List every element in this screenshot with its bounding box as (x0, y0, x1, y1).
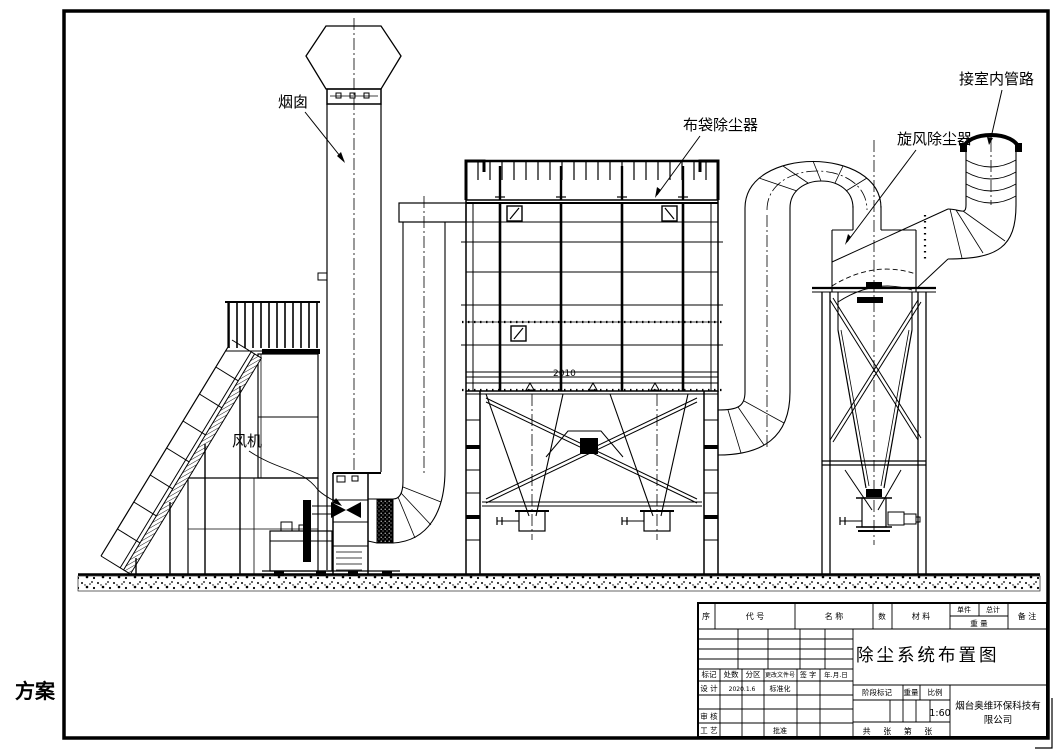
fan-inlet-duct (377, 196, 466, 543)
standardize-label: 标准化 (770, 684, 791, 693)
cyclone-label: 旋风除尘器 (897, 130, 972, 148)
bag-filter-legs (466, 391, 718, 574)
bom-code-header: 代 号 (746, 611, 765, 621)
bag-filter-hoppers (466, 394, 718, 540)
date-col-header: 年.月.日 (824, 670, 848, 679)
bom-name-header: 名 称 (825, 611, 844, 621)
review-label: 审 核 (700, 711, 718, 721)
company-name-line2: 限公司 (984, 715, 1013, 726)
cad-drawing-canvas: 方案 (0, 0, 1064, 752)
dimension-text: 2010 (553, 369, 576, 379)
count-header: 处数 (724, 669, 739, 679)
bom-remark-header: 备 注 (1018, 611, 1037, 621)
scale-value: 1:60 (929, 708, 950, 719)
mark-header: 标记 (702, 669, 717, 679)
process-label: 工 艺 (700, 726, 717, 735)
chimney-label: 烟囱 (278, 93, 308, 111)
drawing-title: 除尘系统布置图 (856, 646, 1000, 666)
design-label: 设 计 (700, 683, 718, 693)
bom-material-header: 材 料 (912, 611, 931, 621)
bom-qty-header: 数 (878, 611, 886, 621)
zone-header: 分区 (746, 670, 761, 679)
bom-total-header: 总计 (986, 605, 1000, 614)
cyclone-to-baghouse-duct (718, 161, 881, 455)
company-name-line1: 烟台奥维环保科技有 (955, 700, 1041, 712)
fan-label: 风机 (232, 432, 262, 450)
cyclone (812, 140, 948, 574)
sign-header: 签 字 (800, 670, 816, 679)
dust-system-layout-drawing: 方案 (0, 0, 1064, 752)
scale-header: 比例 (928, 687, 943, 697)
approve-label: 批准 (773, 726, 787, 735)
change-doc-header: 更改文件号 (765, 671, 795, 679)
bom-seq-header: 序 (702, 611, 710, 621)
design-date: 2020.1.6 (729, 686, 756, 693)
title-block: 序 代 号 名 称 数 材 料 单件 总计 重 量 备 注 标记 处数 分区 更… (698, 603, 1047, 737)
bom-unit-header: 单件 (957, 605, 971, 614)
sheet-count: 共 张 第 张 (863, 726, 938, 736)
bag-filter-label: 布袋除尘器 (683, 116, 758, 134)
bag-filter: 2010 (461, 161, 723, 574)
scheme-label: 方案 (15, 679, 56, 703)
bag-filter-bracing (482, 398, 702, 506)
ground (78, 575, 1040, 592)
cyclone-cone (838, 292, 920, 531)
stage-mark-header: 阶段标记 (862, 687, 892, 697)
chimney (306, 18, 401, 570)
weight-header: 重量 (904, 688, 919, 697)
indoor-pipe-label: 接室内管路 (959, 70, 1034, 88)
bom-weight-header: 重 量 (970, 619, 988, 628)
indoor-pipe-duct (948, 135, 1022, 259)
